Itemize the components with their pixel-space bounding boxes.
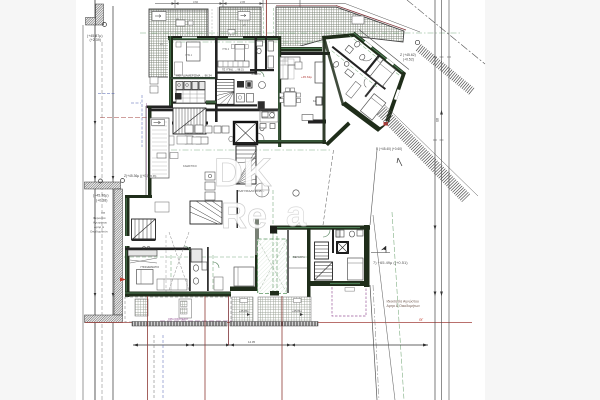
svg-text:85: 85 [435, 118, 439, 122]
svg-text:2.95: 2.95 [240, 0, 246, 4]
svg-text:14.05: 14.05 [248, 340, 255, 344]
svg-text:Αρηα &: Αρηα & [94, 225, 104, 229]
svg-text:ΑΙΘ.–ΔΙΑΜΕΡΙΣΜΑ → 96.34: ΑΙΘ.–ΔΙΑΜΕΡΙΣΜΑ → 96.34 [176, 74, 212, 78]
svg-text:a: a [286, 193, 307, 234]
svg-text:ΠΣ ΥΠΝΔ. → 98.31: ΠΣ ΥΠΝΔ. → 98.31 [222, 69, 244, 72]
svg-text:Z (+45.62): Z (+45.62) [400, 53, 416, 57]
svg-text:ΘΓ: ΘΓ [419, 318, 423, 322]
svg-text:Αρηα & Οικοδομήτων: Αρηα & Οικοδομήτων [387, 304, 421, 308]
svg-text:Ιδιοκτησία Αγνώστου: Ιδιοκτησία Αγνώστου [387, 300, 419, 304]
svg-text:(+45.36): (+45.36) [147, 175, 157, 178]
svg-text:ΒΕΡΑΝΤΑ: ΒΕΡΑΝΤΑ [293, 255, 305, 259]
svg-text:Οικοδομητών: Οικοδομητών [90, 230, 108, 234]
svg-text:ΛΟΥΤΡΟ: ΛΟΥΤΡΟ [251, 73, 261, 76]
svg-text:ΥΠΝ.2: ΥΠΝ.2 [222, 48, 230, 51]
svg-text:(+0.52): (+0.52) [403, 58, 414, 62]
svg-text:(+0.38): (+0.38) [96, 199, 108, 203]
svg-text:ΟΡΙΑ ΟΙΚΟΠΕΔΟΥ: ΟΡΙΑ ΟΙΚΟΠΕΔΟΥ [168, 318, 189, 321]
svg-text:ΥΠΝ.1: ΥΠΝ.1 [185, 54, 193, 57]
svg-text:(+45.36μ): (+45.36μ) [93, 194, 109, 198]
svg-text:+45.05μ: +45.05μ [239, 309, 249, 313]
svg-text:B (+45.40) (+0.60): B (+45.40) (+0.60) [376, 147, 402, 151]
svg-text:Φεροστία: Φεροστία [93, 216, 106, 220]
svg-text:+45.05μ: +45.05μ [292, 309, 302, 313]
svg-text:(+2.39): (+2.39) [90, 38, 102, 42]
svg-text:Αγωγιάτου: Αγωγιάτου [93, 221, 108, 225]
svg-text:3.60: 3.60 [193, 0, 199, 4]
svg-text:Re: Re [221, 195, 267, 236]
svg-text:DK: DK [214, 151, 272, 195]
svg-text:ΚΑΘΙΣΤΙΚΟ: ΚΑΘΙΣΤΙΚΟ [183, 164, 197, 168]
svg-text:+45.62μ: +45.62μ [301, 75, 312, 79]
svg-text:ΥΠ: ΥΠ [101, 211, 105, 215]
svg-text:ΥΠΝΟΔΩΜΑΤΙΟ: ΥΠΝΟΔΩΜΑΤΙΟ [140, 265, 159, 269]
